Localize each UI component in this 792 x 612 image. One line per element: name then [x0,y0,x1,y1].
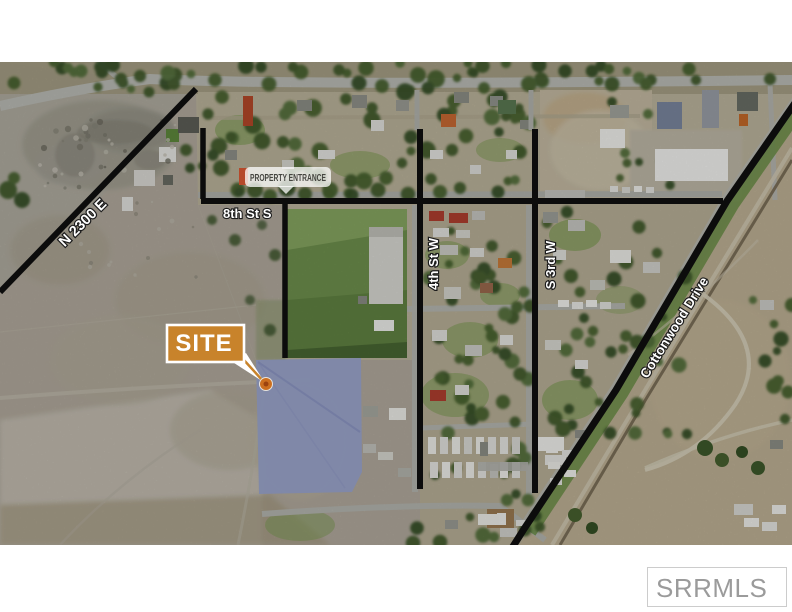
svg-text:4th St W: 4th St W [426,237,441,290]
svg-text:S 3rd W: S 3rd W [543,240,558,289]
svg-text:PROPERTY ENTRANCE: PROPERTY ENTRANCE [250,173,326,184]
svg-text:SITE: SITE [175,330,232,357]
svg-text:8th St S: 8th St S [223,206,272,221]
